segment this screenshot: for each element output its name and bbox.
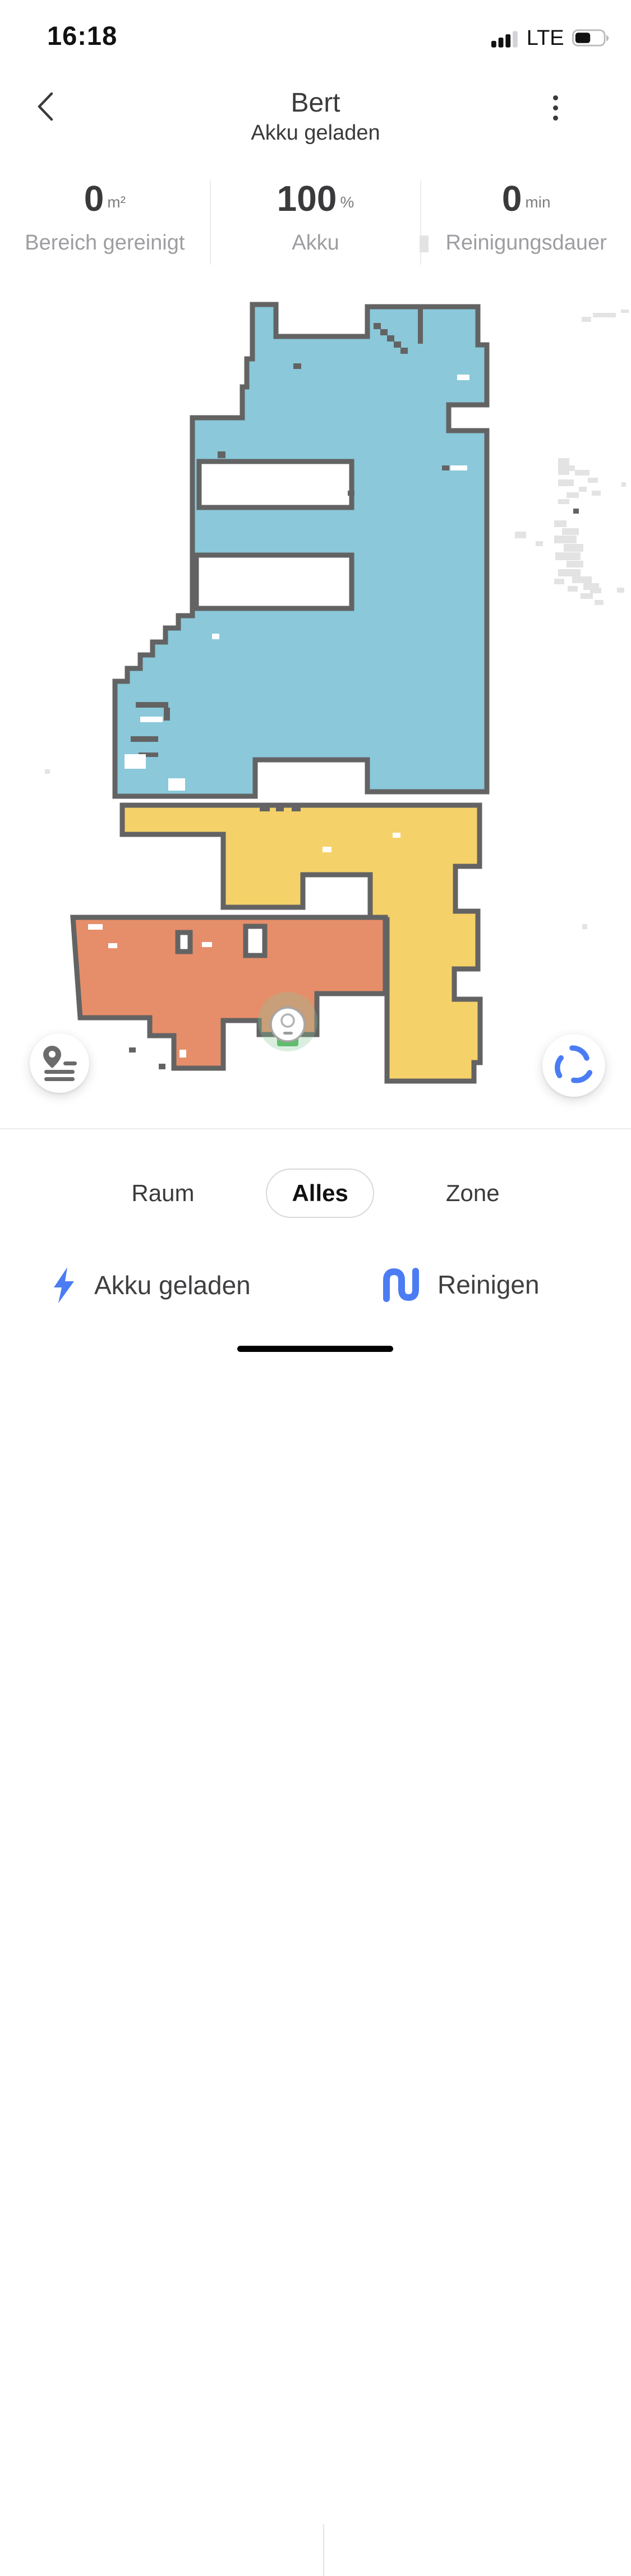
clean-action-label: Reinigen [437, 1269, 540, 1300]
battery-icon [572, 29, 609, 47]
battery-status-item: Akku geladen [52, 1267, 251, 1303]
tab-raum[interactable]: Raum [126, 1170, 200, 1217]
map-obstacle-slot [199, 461, 352, 507]
fan-icon [552, 1044, 596, 1087]
stat-value: 0 [84, 181, 104, 216]
stat-value: 100 [277, 181, 337, 216]
tab-zone[interactable]: Zone [440, 1170, 505, 1217]
map-room-orange[interactable] [73, 917, 385, 1068]
kebab-dot [553, 105, 558, 110]
battery-status-label: Akku geladen [94, 1270, 251, 1300]
kebab-dot [553, 116, 558, 121]
map-pin-list-icon [41, 1045, 78, 1082]
stat-label: Bereich gereinigt [0, 231, 210, 255]
stat-value: 0 [502, 181, 522, 216]
status-icons: LTE [491, 26, 609, 50]
kebab-dot [553, 95, 558, 100]
map-room-blue[interactable] [115, 304, 487, 796]
robot-status-subtitle: Akku geladen [0, 121, 631, 145]
stat-unit: % [340, 193, 354, 211]
fan-speed-button[interactable] [542, 1034, 605, 1097]
stat-area-cleaned: 0m² Bereich gereinigt [0, 181, 210, 265]
stat-battery: 100% Akku [210, 181, 421, 265]
more-menu-button[interactable] [537, 85, 573, 130]
mode-tabs: Raum Alles Zone [0, 1169, 631, 1218]
sheet-divider [0, 1128, 631, 1129]
map-legend-button[interactable] [30, 1033, 89, 1093]
stat-label: Akku [211, 231, 421, 255]
page-title: Bert [0, 87, 631, 118]
action-bar: Akku geladen Reinigen [0, 1258, 631, 1326]
stat-unit: min [525, 193, 550, 211]
stat-cleaning-duration: 0min Reinigungsdauer [420, 181, 631, 265]
scroll-artifact [420, 236, 429, 252]
home-indicator[interactable] [237, 1346, 393, 1352]
action-divider [323, 2524, 324, 2576]
stat-unit: m² [107, 193, 126, 211]
map-obstacle [178, 932, 190, 952]
clean-action-button[interactable]: Reinigen [381, 1267, 540, 1302]
map-obstacle-slot [196, 555, 352, 608]
map-obstacle [246, 926, 265, 955]
lightning-icon [52, 1267, 76, 1303]
status-time: 16:18 [47, 20, 117, 51]
signal-strength-icon [491, 29, 520, 48]
floor-map[interactable] [0, 280, 631, 1121]
stats-row: 0m² Bereich gereinigt 100% Akku 0min Rei… [0, 181, 631, 265]
clean-route-icon [381, 1267, 420, 1302]
stat-label: Reinigungsdauer [421, 231, 631, 255]
robot-marker[interactable] [270, 1007, 306, 1042]
tab-alles[interactable]: Alles [266, 1169, 374, 1218]
network-type-label: LTE [527, 26, 564, 50]
